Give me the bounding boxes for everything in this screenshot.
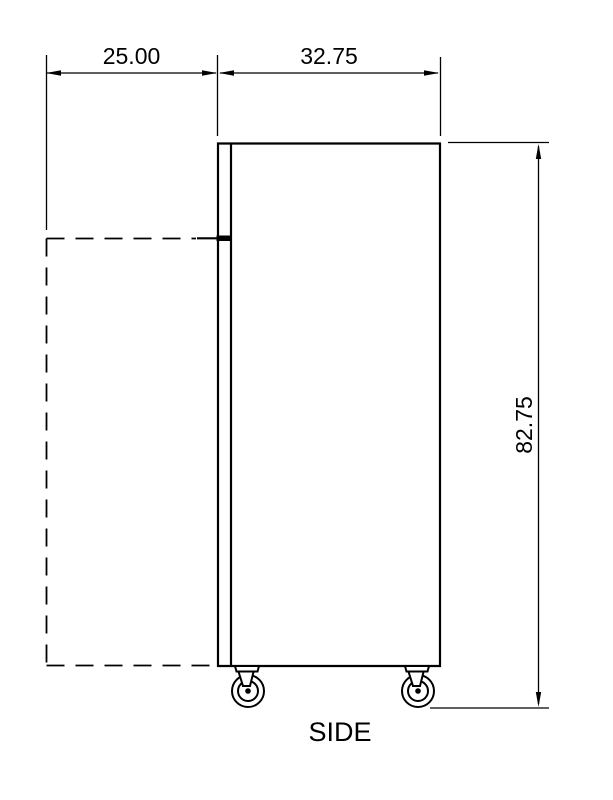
caster-left [232,666,264,707]
arrowhead-right-icon [424,70,439,75]
open-door-dashed-outline [47,236,232,666]
arrowhead-left-icon [219,70,234,75]
technical-drawing-canvas: 25.00 32.75 82.75 [0,0,613,800]
caster-hub [245,688,251,694]
caster-hub [415,688,421,694]
dimension-cabinet-depth: 32.75 [218,43,441,136]
dimension-value-cabinet-depth: 32.75 [300,43,358,69]
view-label: SIDE [308,717,371,747]
dimension-value-overall-height: 82.75 [511,396,537,454]
caster-right [402,666,434,707]
dimension-door-swing: 25.00 [46,43,217,230]
caster-mount-plate [405,666,429,672]
arrowhead-down-icon [536,692,541,707]
arrowhead-left-icon [46,70,61,75]
dimension-value-door-swing: 25.00 [103,43,161,69]
arrowhead-right-icon [202,70,217,75]
cabinet-body-outline [217,143,441,668]
door-profile [218,143,231,668]
arrowhead-up-icon [536,144,541,159]
side-view-drawing: 25.00 32.75 82.75 [0,0,613,800]
caster-mount-plate [235,666,259,672]
dimension-overall-height: 82.75 [430,143,549,709]
